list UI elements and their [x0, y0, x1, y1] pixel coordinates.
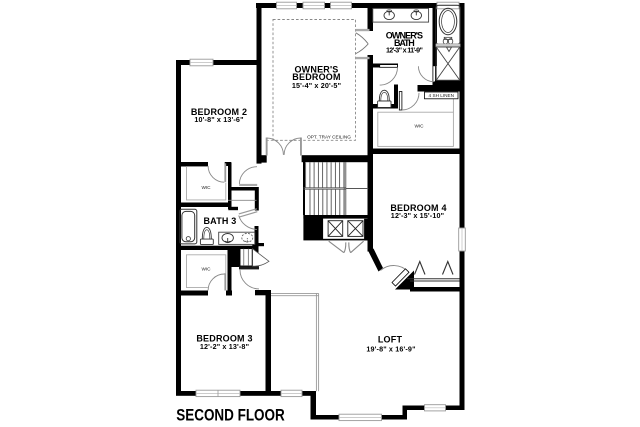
- svg-text:12'-2" x 13'-8": 12'-2" x 13'-8": [200, 342, 249, 351]
- svg-text:LOFT: LOFT: [378, 335, 403, 345]
- svg-text:19'-8" x 16'-9": 19'-8" x 16'-9": [366, 344, 415, 353]
- svg-text:OPT. TRAY CEILING: OPT. TRAY CEILING: [307, 134, 351, 139]
- svg-text:4 SH LINEN: 4 SH LINEN: [429, 93, 455, 98]
- svg-text:10'-8" x 13'-6": 10'-8" x 13'-6": [194, 115, 243, 124]
- svg-text:12'-3" x 15'-10": 12'-3" x 15'-10": [391, 211, 444, 220]
- svg-text:WIC: WIC: [201, 266, 211, 271]
- svg-text:BATH 3: BATH 3: [203, 216, 236, 226]
- svg-text:WIC: WIC: [201, 185, 211, 190]
- svg-text:SECOND FLOOR: SECOND FLOOR: [176, 406, 285, 424]
- svg-text:WIC: WIC: [414, 124, 424, 129]
- svg-text:12'-3" x 11'-9": 12'-3" x 11'-9": [386, 45, 423, 54]
- svg-text:15'-4" x 20'-5": 15'-4" x 20'-5": [292, 81, 341, 90]
